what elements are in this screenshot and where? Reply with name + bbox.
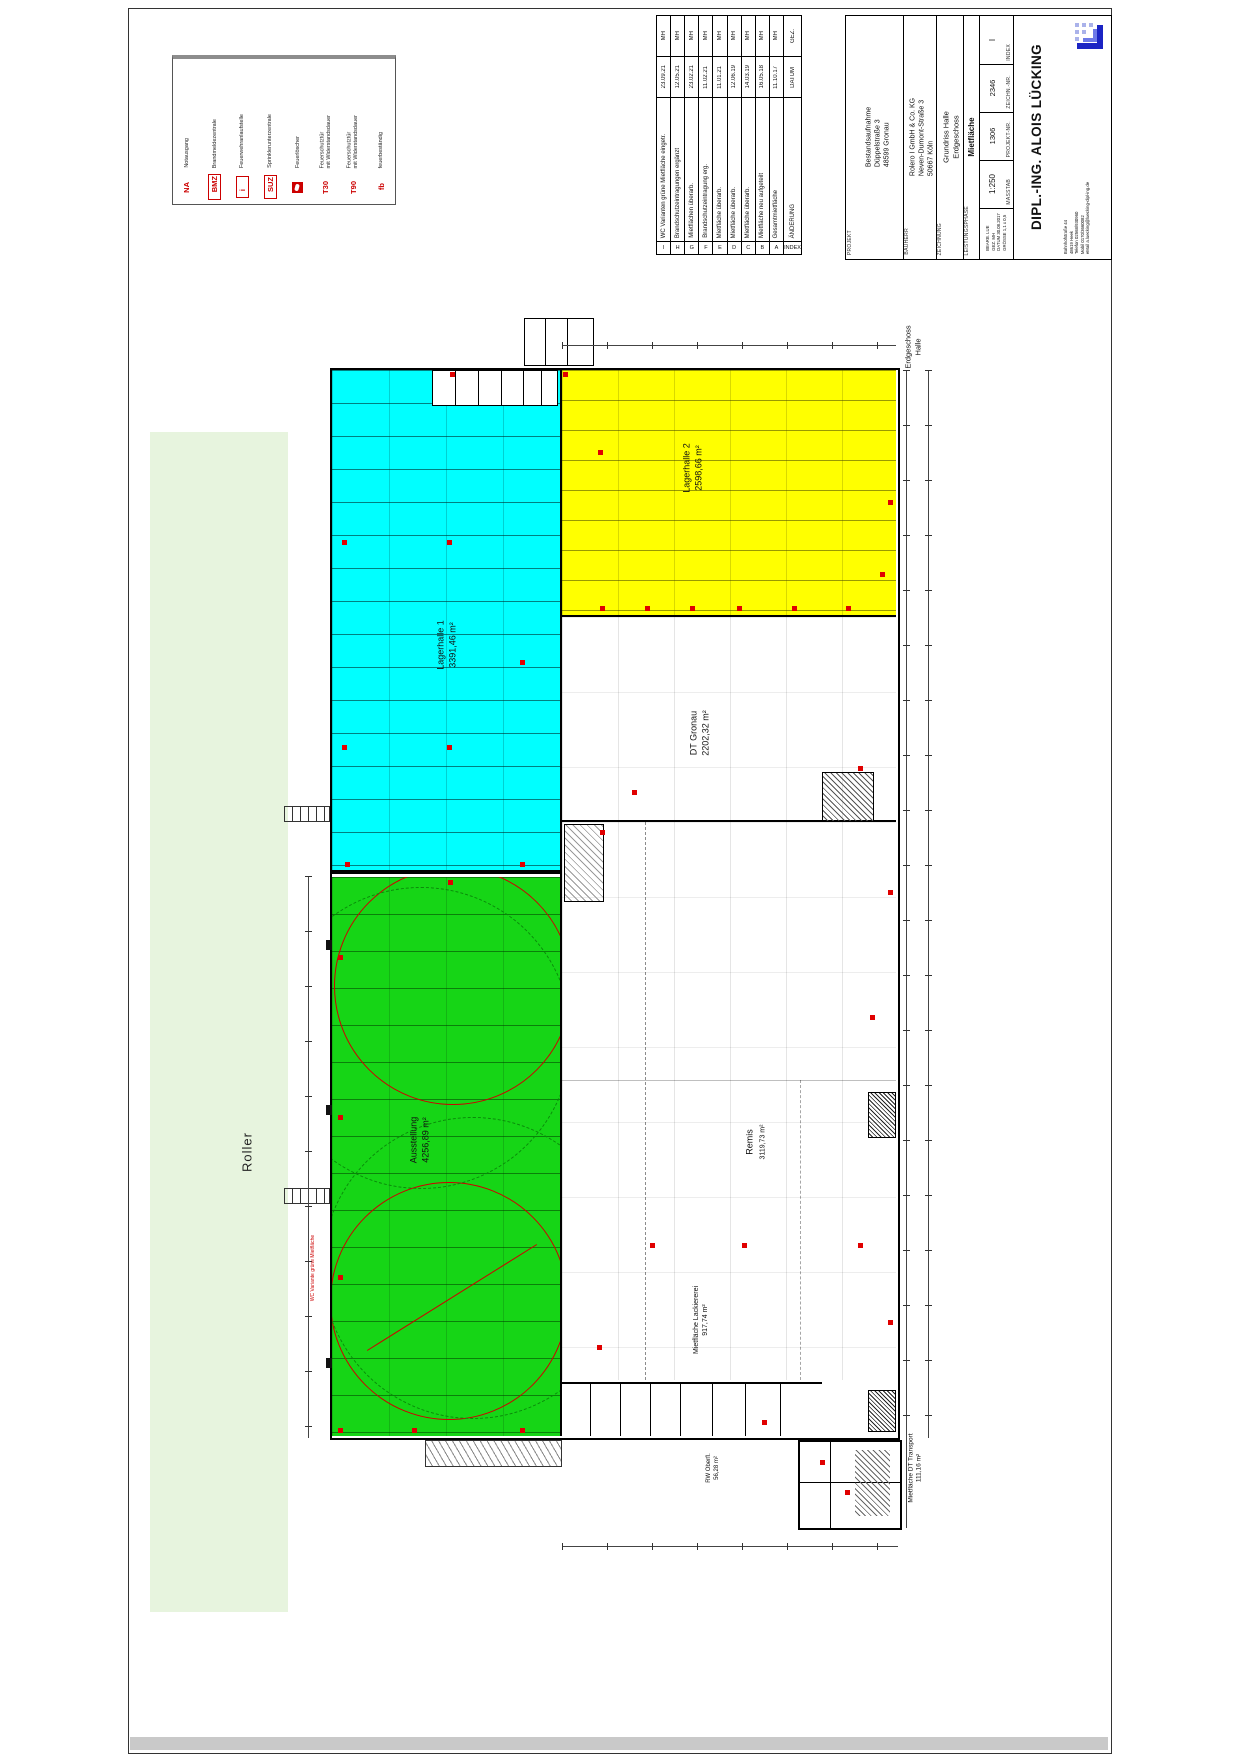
titleblock-leistungsphase: LEISTUNGSPHASE Mietfläche xyxy=(963,16,980,259)
legend-item-fb: feuerbeständig fb xyxy=(367,59,395,204)
legend-label: Notausgang xyxy=(184,138,190,168)
field-meta: BEARB. LUEGEZ. MHDATUM 30.08.2017GRÖSSE … xyxy=(979,208,1013,256)
neighbor-label: Roller xyxy=(240,1132,257,1172)
revision-date: 14.03.19 xyxy=(745,65,751,88)
room-divider xyxy=(590,1384,591,1436)
room-divider xyxy=(620,1384,621,1436)
exit-code-icon: NA xyxy=(182,182,191,193)
revision-gez: MH xyxy=(731,31,737,40)
sheet-footer-bar xyxy=(130,1737,1108,1750)
revision-row-D: MH 12.06.19 Mietfläche überarb. D xyxy=(728,16,742,254)
projekt-nr-label: PROJEKT-NR. xyxy=(1006,121,1012,157)
bauherr-value: Rolero I GmbH & Co. KGNeven-Dumont-Straß… xyxy=(908,98,935,176)
shaft-box-1 xyxy=(868,1092,896,1138)
revision-index: B xyxy=(760,245,764,251)
label-lackiererei: Mietfläche Lackiererei917,74 m² xyxy=(692,1286,710,1354)
revision-row-E: MH 11.01.21 Mietfläche überarb. E xyxy=(713,16,727,254)
revision-header-gez: GEZ. xyxy=(790,29,796,43)
label-ausstellung: Ausstellung4256,89 m² xyxy=(408,1117,431,1164)
title-block: PROJEKT BestandsaufnahmeDüppelstraße 348… xyxy=(845,15,1112,260)
legend-item-bmz: Brandmeldezentrale BMZ xyxy=(201,59,229,204)
legend-item-feuerwehranlaufstelle: Feuerwehranlaufstelle i xyxy=(229,59,257,204)
dim-ticks-bottom xyxy=(562,1543,898,1550)
revision-index: I xyxy=(663,245,665,251)
layout-arc-2 xyxy=(332,1117,560,1419)
t30-door-icon: T30 xyxy=(321,181,330,194)
legend-label: Sprinklerunterzentrale xyxy=(267,114,273,168)
legend-label: Brandmeldezentrale xyxy=(211,119,217,168)
corridor-line-2 xyxy=(800,1080,801,1380)
suz-box-icon: SUZ xyxy=(264,175,277,199)
legend-item-suz: Sprinklerunterzentrale SUZ xyxy=(256,59,284,204)
revision-gez: MH xyxy=(759,31,765,40)
revision-table: MH 23.09.21 WC Varianten grüne Mietfläch… xyxy=(656,15,802,255)
revision-index: H xyxy=(676,245,680,251)
massstab-label: MASSTAB xyxy=(1006,179,1012,205)
wall-center-vertical xyxy=(560,370,562,1436)
revision-gez: MH xyxy=(773,31,779,40)
revision-change: Mietflächen überarb. xyxy=(689,183,695,238)
revision-change: Gesamtmietfläche xyxy=(773,190,779,238)
room-divider xyxy=(745,1384,746,1436)
massstab-value: 1:250 xyxy=(988,174,998,194)
revision-row-F: MH 11.02.21 Brandschutzeintragung erg. F xyxy=(699,16,713,254)
revision-date: 11.02.21 xyxy=(703,66,709,89)
revision-index: A xyxy=(775,245,779,251)
field-massstab: MASSTAB 1:250 xyxy=(979,160,1013,209)
zeichnung-value: Grundriss HalleErdgeschoss xyxy=(941,111,961,163)
wall-cyan-green xyxy=(332,870,560,874)
revision-date: 11.10.17 xyxy=(773,66,779,89)
t90-door-icon: T90 xyxy=(349,181,358,194)
trafo-room xyxy=(822,772,874,822)
revision-header-column: GEZ. DATUM ÄNDERUNG INDEX xyxy=(784,16,801,254)
legend-label: Feuerschutztürmit Widerstandsdauer xyxy=(347,115,360,169)
area-remis xyxy=(562,822,896,1380)
revision-date: 12.05.21 xyxy=(675,65,681,88)
wall-yellow-dt xyxy=(562,615,896,617)
drawing-sheet: Notausgang NA Brandmeldezentrale BMZ Feu… xyxy=(0,0,1240,1754)
fb-code-icon: fb xyxy=(377,183,386,190)
revision-header-change: ÄNDERUNG xyxy=(790,204,796,238)
architect-address: Bahnhofstraße 4448619 HeekTelefon 02568/… xyxy=(1063,182,1091,254)
revision-index: E xyxy=(718,245,722,251)
revision-row-C: MH 14.03.19 Mietfläche überarb. C xyxy=(742,16,756,254)
architect-name: DIPL.-ING. ALOIS LÜCKING xyxy=(1028,44,1046,230)
revision-index: G xyxy=(690,245,694,251)
meta-value: BEARB. LUEGEZ. MHDATUM 30.08.2017GRÖSSE … xyxy=(985,213,1007,251)
field-index: INDEX I xyxy=(979,16,1013,65)
legend-item-notausgang: Notausgang NA xyxy=(173,59,201,204)
room-divider xyxy=(650,1384,651,1436)
revision-date: 23.02.21 xyxy=(689,65,695,88)
projekt-value: BestandsaufnahmeDüppelstraße 348599 Gron… xyxy=(864,107,891,167)
wc-block xyxy=(432,370,558,406)
revision-change: Mietfläche neu aufgeteilt xyxy=(759,173,765,238)
fire-extinguisher-markers xyxy=(0,0,5,5)
revision-change: Mietfläche überarb. xyxy=(717,187,723,238)
bmz-box-icon: BMZ xyxy=(208,174,221,199)
revision-date: 23.09.21 xyxy=(661,65,667,88)
revision-row-G: MH 23.02.21 Mietflächen überarb. G xyxy=(685,16,699,254)
door-mark xyxy=(326,940,332,950)
label-rw: RW Oberfl.56,28 m² xyxy=(706,1453,722,1483)
shaft-box-2 xyxy=(868,1390,896,1432)
zeichn-nr-label: ZEICHN.-NR. xyxy=(1006,75,1012,109)
revision-index: C xyxy=(746,245,750,251)
revision-gez: MH xyxy=(745,31,751,40)
ramp-hatch xyxy=(425,1440,562,1467)
revision-row-I: MH 23.09.21 WC Varianten grüne Mietfläch… xyxy=(657,16,671,254)
revision-date: 11.01.21 xyxy=(717,66,723,89)
dim-ticks-top xyxy=(562,342,896,349)
revision-change: Brandschutzeintragungen ergänzt xyxy=(675,148,681,238)
revision-date: 16.05.18 xyxy=(759,65,765,88)
bauherr-label: BAUHERR xyxy=(904,228,910,255)
label-lagerhalle1: Lagerhalle 13391,46 m² xyxy=(435,620,458,670)
door-mark xyxy=(326,1105,332,1115)
corridor-line-3 xyxy=(562,1080,896,1081)
index-value: I xyxy=(988,39,998,41)
dim-ticks-left xyxy=(305,876,312,1438)
room-divider xyxy=(712,1384,713,1436)
red-note: WC Variante grüne Mietfläche xyxy=(310,1235,317,1301)
revision-header-index: INDEX xyxy=(784,245,801,251)
revision-header-date: DATUM xyxy=(790,67,796,88)
revision-row-B: MH 16.05.18 Mietfläche neu aufgeteilt B xyxy=(756,16,770,254)
legend-item-t90: Feuerschutztürmit Widerstandsdauer T90 xyxy=(340,59,368,204)
remis-room-topleft xyxy=(564,824,604,902)
revision-gez: MH xyxy=(689,31,695,40)
area-ausstellung xyxy=(332,877,560,1436)
revision-row-H: MH 12.05.21 Brandschutzeintragungen ergä… xyxy=(671,16,685,254)
titleblock-zeichnung: ZEICHNUNG Grundriss HalleErdgeschoss xyxy=(936,16,964,259)
revision-change: Brandschutzeintragung erg. xyxy=(703,164,709,238)
legend: Notausgang NA Brandmeldezentrale BMZ Feu… xyxy=(172,55,396,205)
room-divider xyxy=(780,1384,781,1436)
legend-label: Feuerwehranlaufstelle xyxy=(239,114,245,168)
titleblock-fields: INDEX I ZEICHN.-NR. 2346 PROJEKT-NR. 130… xyxy=(979,16,1014,259)
revision-change: WC Varianten grüne Mietfläche eingetr. xyxy=(661,134,667,238)
revision-gez: MH xyxy=(703,31,709,40)
titleblock-projekt: PROJEKT BestandsaufnahmeDüppelstraße 348… xyxy=(846,16,904,259)
projekt-nr-value: 1306 xyxy=(988,128,998,145)
revision-row-A: MH 11.10.17 Gesamtmietfläche A xyxy=(770,16,784,254)
bottom-right-annex xyxy=(798,1440,902,1530)
label-erdgeschoss: ErdgeschossHalle xyxy=(903,325,923,368)
legend-label: Feuerlöscher xyxy=(295,136,301,168)
field-zeichn-nr: ZEICHN.-NR. 2346 xyxy=(979,64,1013,113)
corridor-line-1 xyxy=(645,822,646,1380)
fire-extinguisher-icon xyxy=(292,182,303,193)
legend-item-t30: Feuerschutztürmit Widerstandsdauer T30 xyxy=(312,59,340,204)
revision-gez: MH xyxy=(717,31,723,40)
zeichn-nr-value: 2346 xyxy=(988,80,998,97)
titleblock-bauherr: BAUHERR Rolero I GmbH & Co. KGNeven-Dumo… xyxy=(903,16,937,259)
label-dt-transport: Mietfläche DT Transport111,16 m² xyxy=(908,1433,925,1502)
leistungsphase-value: Mietfläche xyxy=(967,117,977,156)
area-lagerhalle2 xyxy=(562,370,896,615)
label-lagerhalle2: Lagerhalle 22598,66 m² xyxy=(681,443,704,493)
neighbor-parcel xyxy=(150,432,288,1612)
revision-change: Mietfläche überarb. xyxy=(745,187,751,238)
label-remis: Remis3119,73 m² xyxy=(744,1125,767,1160)
titleblock-architect: DIPL.-ING. ALOIS LÜCKING Bahnhofstraße 4… xyxy=(1013,16,1110,259)
revision-change: Mietfläche überarb. xyxy=(731,187,737,238)
dim-ticks-right-2 xyxy=(925,370,932,1438)
legend-label: Feuerschutztürmit Widerstandsdauer xyxy=(319,115,332,169)
revision-index: D xyxy=(732,245,736,251)
architect-logo-icon xyxy=(1073,21,1107,53)
wall-rooms-top xyxy=(562,1382,822,1384)
projekt-label: PROJEKT xyxy=(847,230,853,255)
zeichnung-label: ZEICHNUNG xyxy=(937,223,943,255)
revision-gez: MH xyxy=(661,31,667,40)
revision-gez: MH xyxy=(675,31,681,40)
revision-index: F xyxy=(704,245,707,251)
label-dt-gronau: DT Gronau2202,32 m² xyxy=(688,710,711,756)
legend-label: feuerbeständig xyxy=(378,132,384,168)
dim-ticks-right-1 xyxy=(903,370,910,1438)
room-divider xyxy=(680,1384,681,1436)
door-mark xyxy=(326,1358,332,1368)
leistungsphase-label: LEISTUNGSPHASE xyxy=(964,206,970,256)
stair-left-1 xyxy=(284,806,330,822)
legend-item-feuerloescher: Feuerlöscher xyxy=(284,59,312,204)
index-label: INDEX xyxy=(1006,44,1012,61)
field-projekt-nr: PROJEKT-NR. 1306 xyxy=(979,112,1013,161)
revision-date: 12.06.19 xyxy=(731,65,737,88)
info-box-icon: i xyxy=(236,176,249,198)
